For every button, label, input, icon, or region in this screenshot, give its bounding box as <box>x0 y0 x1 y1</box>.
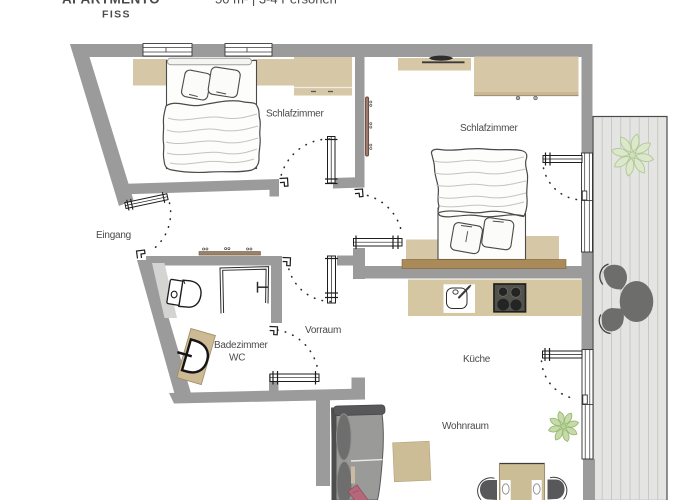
svg-text:Vorraum: Vorraum <box>305 325 341 336</box>
svg-text:Badezimmer: Badezimmer <box>214 340 269 351</box>
svg-text:50 m² | 3-4 Personen: 50 m² | 3-4 Personen <box>215 0 337 7</box>
svg-text:Wohnraum: Wohnraum <box>442 421 489 432</box>
svg-text:Küche: Küche <box>463 354 491 365</box>
svg-text:WC: WC <box>229 353 245 364</box>
svg-text:FISS: FISS <box>102 9 131 21</box>
svg-text:Eingang: Eingang <box>96 230 131 241</box>
svg-text:Schlafzimmer: Schlafzimmer <box>266 109 324 120</box>
svg-text:APARTMENTO: APARTMENTO <box>62 0 160 7</box>
svg-text:Schlafzimmer: Schlafzimmer <box>460 123 518 134</box>
